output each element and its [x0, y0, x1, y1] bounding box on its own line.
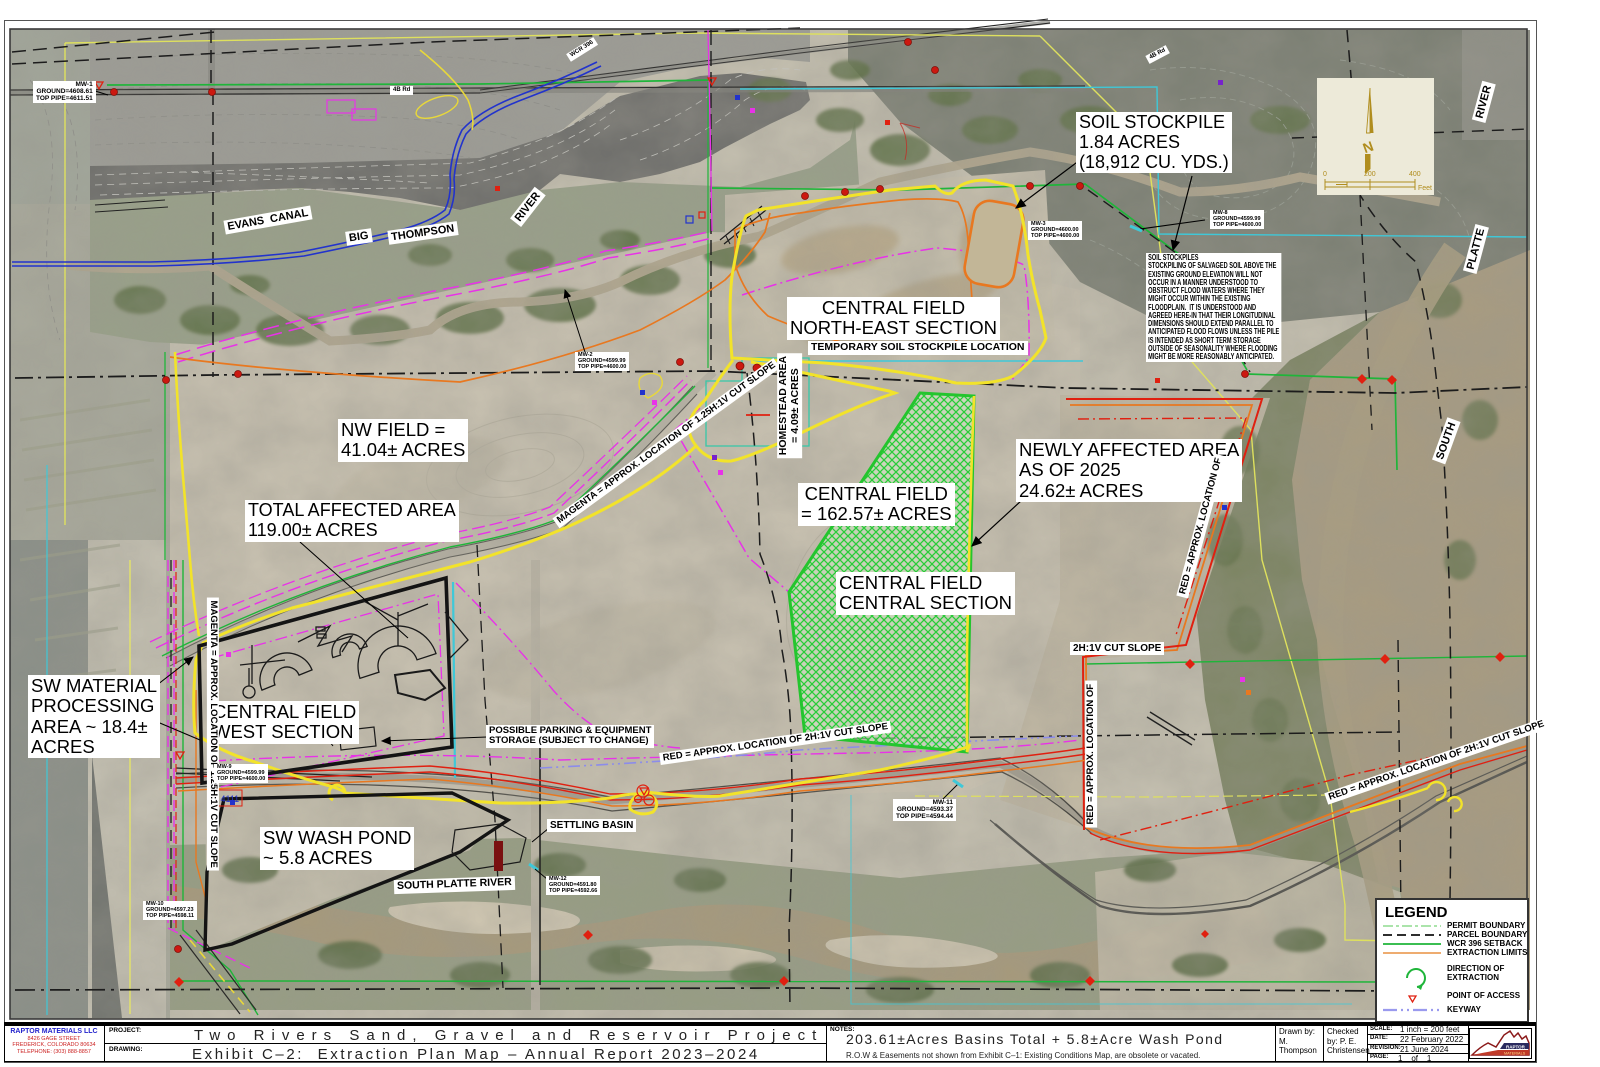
svg-text:RAPTOR: RAPTOR — [1506, 1045, 1526, 1050]
svg-text:Feet: Feet — [1418, 185, 1432, 192]
svg-text:0: 0 — [1323, 171, 1327, 178]
svg-text:N: N — [1361, 138, 1376, 156]
svg-text:200: 200 — [1364, 171, 1376, 178]
svg-text:MATERIALS: MATERIALS — [1504, 1052, 1526, 1056]
svg-text:400: 400 — [1409, 171, 1421, 178]
